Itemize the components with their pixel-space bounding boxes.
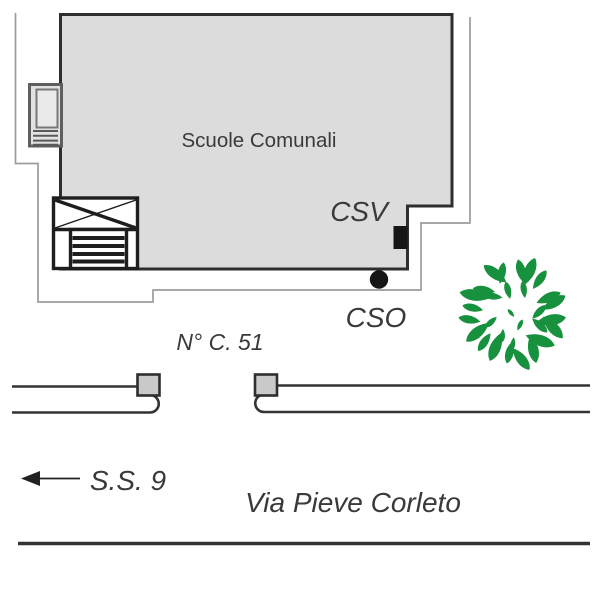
entrance-structure bbox=[54, 198, 138, 269]
gate-post-left bbox=[138, 375, 160, 396]
arrow-head bbox=[21, 471, 40, 486]
direction-arrow-icon bbox=[21, 471, 80, 486]
cso-marker-dot bbox=[370, 270, 388, 288]
csv-label: CSV bbox=[330, 196, 390, 227]
site-map: Scuole Comunali CSV CSO N° C. 51 bbox=[0, 0, 600, 600]
gate-post-right bbox=[255, 375, 277, 396]
civic-number-label: N° C. 51 bbox=[176, 329, 263, 355]
cso-label: CSO bbox=[346, 302, 407, 333]
road-edge-bottom-right bbox=[255, 395, 590, 413]
road-edge-bottom-left bbox=[12, 395, 159, 413]
building-label: Scuole Comunali bbox=[182, 129, 337, 152]
street-label: Via Pieve Corleto bbox=[245, 487, 461, 518]
window-structure bbox=[30, 85, 62, 147]
window-pane bbox=[37, 90, 58, 128]
highway-label: S.S. 9 bbox=[90, 465, 166, 496]
map-svg: Scuole Comunali CSV CSO N° C. 51 bbox=[0, 0, 600, 600]
tree-icon bbox=[458, 256, 568, 373]
csv-marker bbox=[394, 226, 408, 249]
